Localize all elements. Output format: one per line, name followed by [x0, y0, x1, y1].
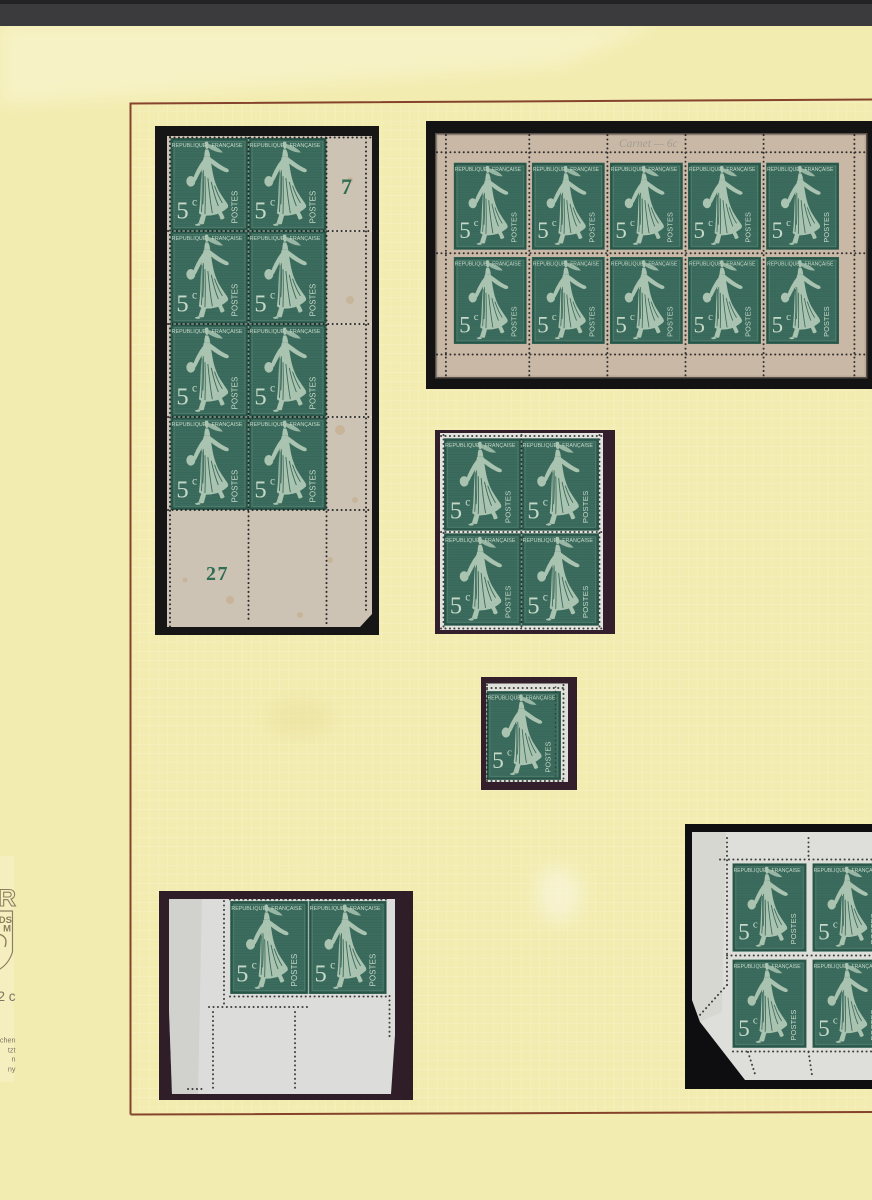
svg-text:n: n [12, 1055, 16, 1064]
svg-text:27: 27 [206, 563, 229, 585]
svg-text:tzt: tzt [8, 1046, 16, 1055]
svg-text:chen: chen [0, 1036, 16, 1045]
svg-text:ER: ER [0, 885, 17, 912]
svg-text:ny: ny [8, 1065, 16, 1074]
svg-text:M: M [3, 924, 11, 935]
svg-text:Carnet — 6c: Carnet — 6c [619, 138, 678, 150]
svg-text:2 c: 2 c [0, 989, 16, 1004]
svg-text:7: 7 [341, 174, 352, 199]
